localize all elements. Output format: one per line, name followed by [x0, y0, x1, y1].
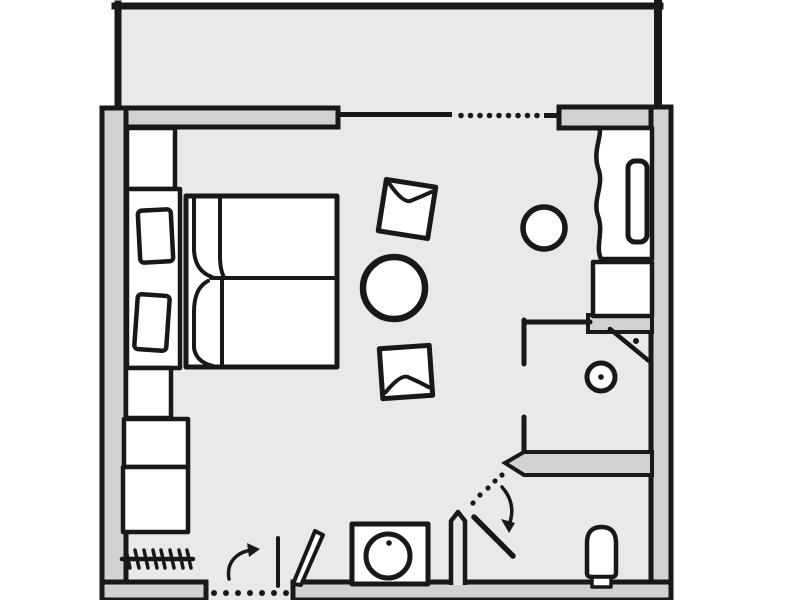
wc-door-pillar	[451, 512, 465, 585]
stool-upper-seat	[378, 179, 436, 238]
cabinet-3	[123, 467, 188, 532]
tv	[628, 161, 647, 242]
cabinet-2	[124, 419, 188, 467]
stool-lower	[379, 345, 432, 398]
wall-top-left	[102, 108, 338, 127]
floor-plan-page	[0, 0, 800, 600]
corner-shower-drain-dot	[633, 338, 639, 344]
toilet-base	[592, 577, 611, 587]
stool-upper	[378, 179, 436, 238]
balcony-floor	[119, 4, 656, 110]
wc-top-wall-pointed	[505, 452, 652, 475]
balcony	[115, 4, 660, 110]
floor-plan-drawing	[0, 0, 800, 600]
toilet	[587, 527, 616, 587]
double-bed	[186, 196, 337, 367]
round-table	[363, 257, 425, 319]
desk-cabinet	[593, 262, 652, 316]
balcony-door-dash	[544, 113, 557, 118]
basin-unit	[352, 524, 428, 584]
balcony-door-glazing-line	[338, 112, 452, 117]
pillow-bottom	[134, 294, 170, 351]
washbasin-drain-dot	[598, 374, 604, 380]
desk-chair	[523, 207, 565, 249]
cabinet-1	[126, 368, 171, 418]
toilet-bowl	[587, 527, 616, 577]
pillow-top	[138, 209, 174, 263]
basin-unit-tap-dot	[386, 540, 392, 546]
wardrobe	[127, 128, 175, 189]
wall-bottom-left	[102, 582, 206, 600]
balcony-door-dotted-opening	[458, 113, 540, 119]
